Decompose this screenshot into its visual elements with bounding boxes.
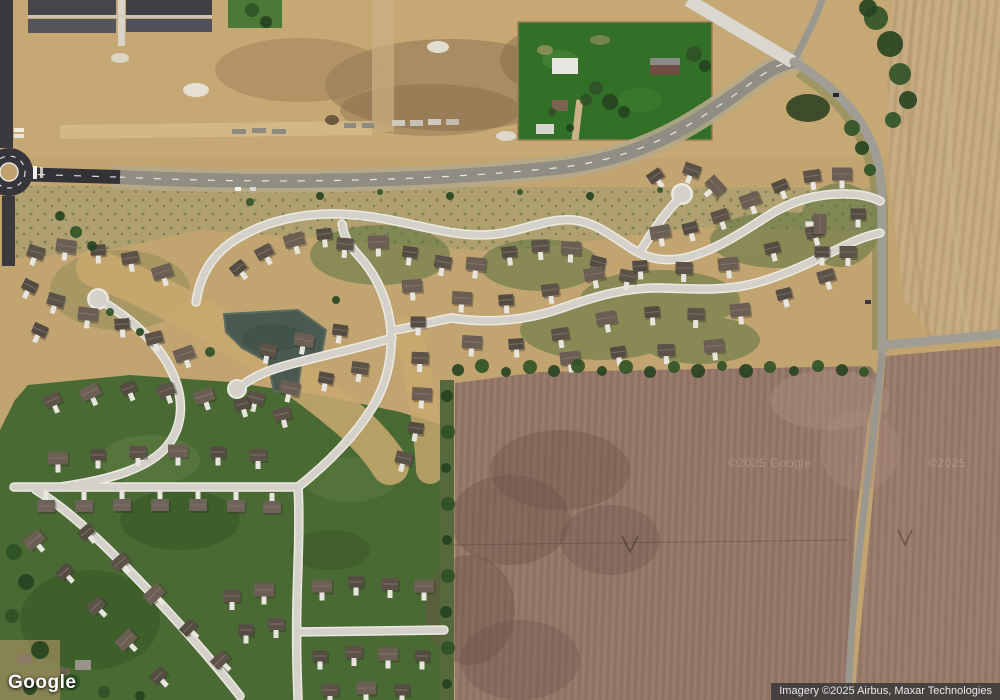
tree xyxy=(764,361,776,373)
tree xyxy=(260,16,272,28)
tree xyxy=(501,367,511,377)
dark-pond xyxy=(786,94,830,122)
tree xyxy=(440,606,452,618)
tree xyxy=(844,120,860,136)
tree xyxy=(452,364,464,376)
tree xyxy=(668,361,680,373)
tree xyxy=(899,91,917,109)
tree xyxy=(98,686,110,698)
satellite-map[interactable]: ©2025 Google ©2025 Google Imagery ©2025 … xyxy=(0,0,1000,700)
tree xyxy=(446,192,454,200)
tree xyxy=(686,46,702,62)
tree xyxy=(859,367,869,377)
satellite-imagery[interactable] xyxy=(0,0,1000,700)
plowed-field xyxy=(425,346,1000,700)
tree xyxy=(245,3,259,17)
tree xyxy=(517,189,523,195)
vehicle xyxy=(250,187,256,191)
tree xyxy=(441,641,455,655)
tree xyxy=(855,141,869,155)
tree xyxy=(571,359,585,373)
tree xyxy=(441,463,451,473)
tree xyxy=(332,296,340,304)
shed xyxy=(536,124,554,134)
tree xyxy=(316,192,324,200)
farmhouse xyxy=(552,58,578,74)
tree xyxy=(717,361,727,371)
harvested-field xyxy=(887,0,1000,344)
house xyxy=(322,684,341,700)
tree xyxy=(739,364,753,378)
tree xyxy=(586,192,594,200)
tree xyxy=(55,211,65,221)
tree xyxy=(602,94,618,110)
tree xyxy=(6,544,22,560)
tree xyxy=(877,31,903,57)
tree xyxy=(657,187,663,193)
tree xyxy=(589,81,603,95)
tree xyxy=(441,569,455,583)
tree xyxy=(812,360,824,372)
google-logo[interactable]: Google xyxy=(8,672,76,694)
tree xyxy=(618,106,630,118)
tree xyxy=(885,112,901,128)
tree xyxy=(619,360,633,374)
tree xyxy=(548,108,556,116)
tree xyxy=(106,308,114,316)
tree xyxy=(136,328,144,336)
tree xyxy=(864,164,876,176)
tree xyxy=(205,347,215,357)
tree xyxy=(441,425,455,439)
tree xyxy=(70,226,82,238)
tree xyxy=(566,124,574,132)
tree xyxy=(523,360,537,374)
tree xyxy=(548,365,560,377)
tree xyxy=(644,366,656,378)
tree xyxy=(31,641,49,659)
tree xyxy=(789,366,799,376)
tree xyxy=(377,189,383,195)
tree xyxy=(597,366,607,376)
tree xyxy=(836,364,848,376)
tree xyxy=(442,535,452,545)
tree xyxy=(441,390,453,402)
tree xyxy=(475,359,489,373)
tree xyxy=(889,63,911,85)
tree xyxy=(580,94,592,106)
vehicle xyxy=(833,93,839,97)
imagery-attribution: Imagery ©2025 Airbus, Maxar Technologies xyxy=(771,683,1000,700)
tree xyxy=(246,198,254,206)
tree xyxy=(441,497,455,511)
tree xyxy=(442,679,452,689)
tree xyxy=(87,241,97,251)
vehicle xyxy=(235,187,241,191)
tree xyxy=(691,364,705,378)
vehicle xyxy=(865,300,871,304)
tree xyxy=(699,60,711,72)
tree xyxy=(18,574,34,590)
tree xyxy=(5,609,19,623)
